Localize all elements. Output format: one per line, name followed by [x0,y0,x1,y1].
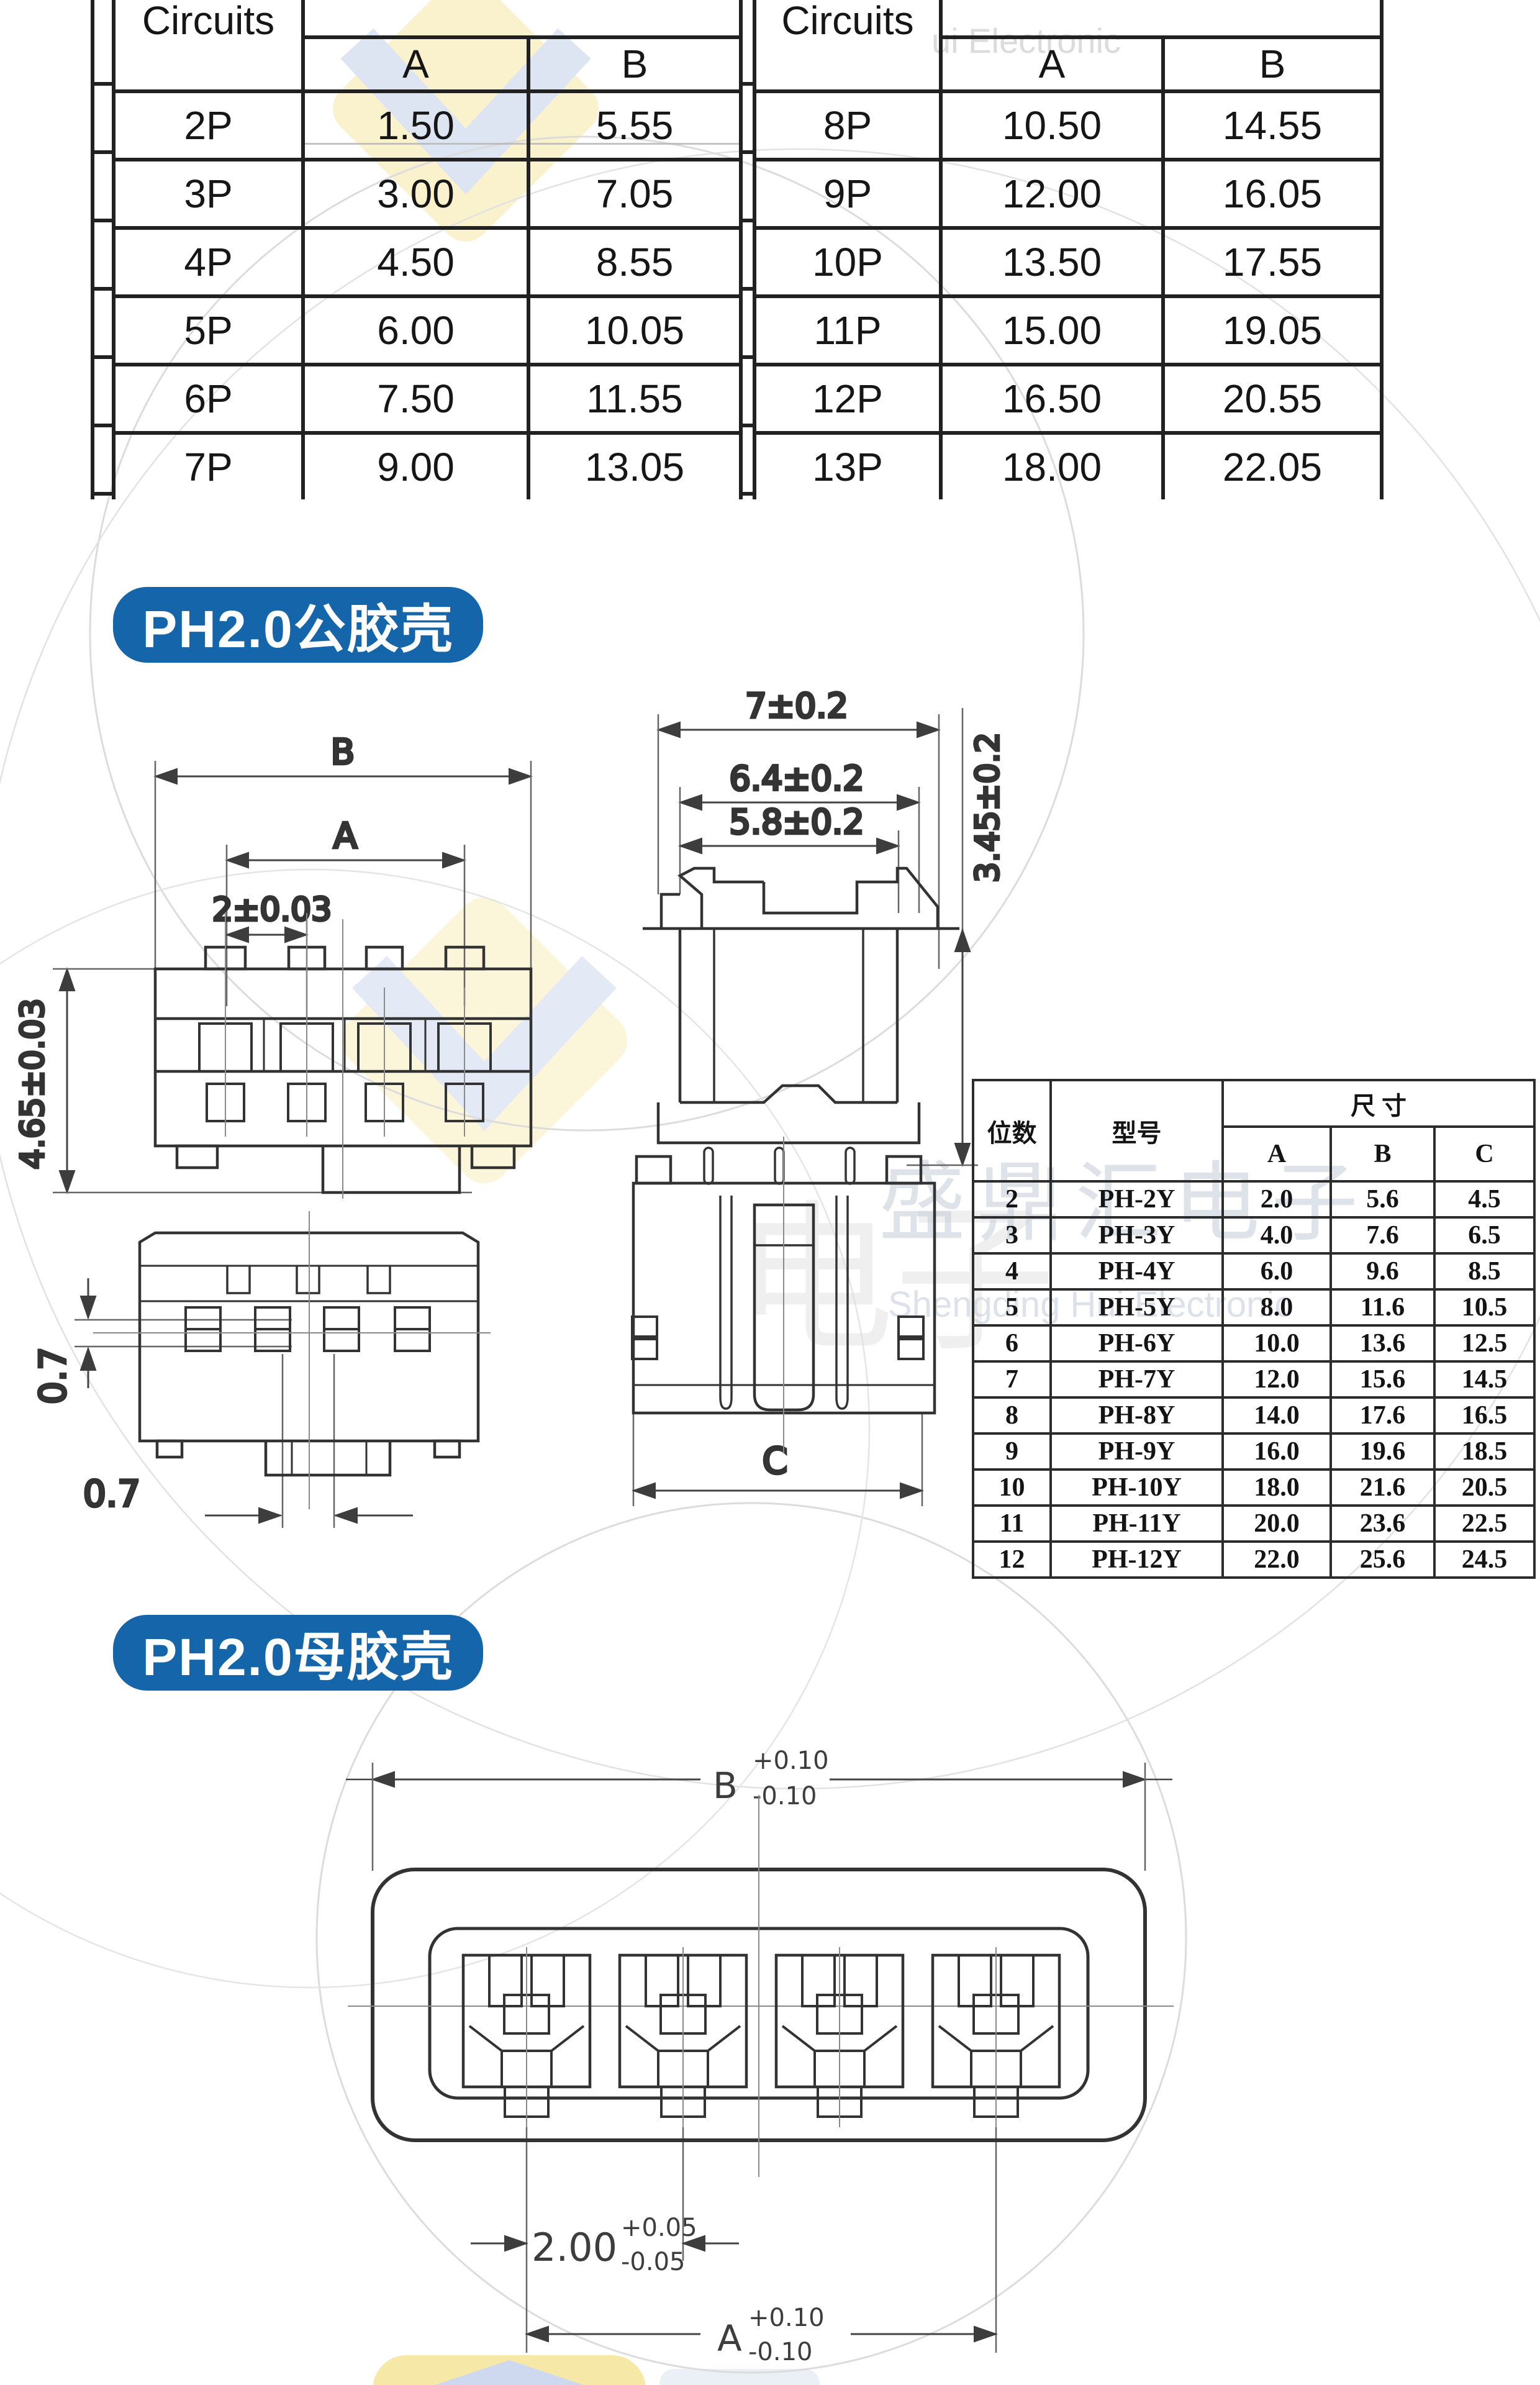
table-cell: 10P [754,228,941,296]
table-cell: 20.0 [1223,1506,1331,1542]
male-top-view: C [632,1137,935,1506]
table-row: 11P15.0019.05 [754,296,1382,365]
table-cell: 8 [973,1397,1051,1433]
table-cell: 11P [754,296,941,365]
table-cell: 6P [114,365,303,433]
col-header-cropped [303,0,741,37]
dim-label-pitch-tol-plus: +0.05 [621,2214,697,2242]
table-cell: 5 [973,1289,1051,1325]
table-cell: 12P [754,365,941,433]
table-cell: 9 [973,1433,1051,1470]
table-cell: 14.55 [1163,91,1382,160]
table-cell: 10.0 [1223,1325,1331,1361]
dim-label-b-tol-minus: -0.10 [753,1782,817,1810]
table-cell: 16.50 [941,365,1163,433]
table-cell: 21.6 [1331,1470,1434,1506]
table-row: 5PH-5Y8.011.610.5 [973,1289,1534,1325]
table-cell: 6 [973,1325,1051,1361]
table-cell: 13.6 [1331,1325,1434,1361]
table-cell: 12 [973,1542,1051,1578]
table-cell: PH-3Y [1051,1217,1223,1253]
spec-header-positions: 位数 [973,1080,1051,1181]
col-header-a: A [941,37,1163,91]
table-cell: 5P [114,296,303,365]
table-cell: 23.6 [1331,1506,1434,1542]
table-row: 5P6.0010.05 [114,296,741,365]
table-cell: 11 [973,1506,1051,1542]
female-housing-drawing: +0.10 B -0.10 2.00 +0.05 -0.05 A +0.10 -… [0,1727,1540,2385]
dim-label-b-tol-plus: +0.10 [753,1747,829,1775]
table-row: 11PH-11Y20.023.622.5 [973,1506,1534,1542]
spec-header-model: 型号 [1051,1080,1223,1181]
table-cell: PH-7Y [1051,1361,1223,1397]
dim-label-pitch: 2.00 [532,2225,617,2270]
table-cell: PH-5Y [1051,1289,1223,1325]
male-housing-badge-label: PH2.0公胶壳 [142,588,453,663]
table-cell: 13P [754,433,941,499]
table-cell: 9.00 [303,433,528,499]
table-cell: 14.0 [1223,1397,1331,1433]
table-cell: 8P [754,91,941,160]
product-spec-page: ui Electronic 电子 盛鼎汇电子 Shengding Hui Ele… [0,0,1540,2385]
table-cell: 10 [973,1470,1051,1506]
table-cell: 19.6 [1331,1433,1434,1470]
male-front-view: B A 2±0.03 4.65±0.03 [14,732,531,1199]
dim-label-b: B [331,732,355,773]
table-cell: 14.5 [1434,1361,1534,1397]
table-cell: 13.05 [528,433,741,499]
male-spec-table: 位数 型号 尺 寸 A B C 2PH-2Y2.05.64.53PH-3Y4.0… [972,1079,1536,1579]
table-cell: 24.5 [1434,1542,1534,1578]
table-row: 9P12.0016.05 [754,160,1382,228]
table-cell: 9.6 [1331,1253,1434,1289]
table-cell: 16.0 [1223,1433,1331,1470]
table-cell: 18.00 [941,433,1163,499]
table-cell: PH-11Y [1051,1506,1223,1542]
table-cell: 11.6 [1331,1289,1434,1325]
table-cell: 4.0 [1223,1217,1331,1253]
dim-label-w3: 5.8±0.2 [729,802,864,842]
table-cell: 6.00 [303,296,528,365]
table-cell: 11.55 [528,365,741,433]
table-cell: PH-4Y [1051,1253,1223,1289]
spec-header-size: 尺 寸 [1223,1080,1534,1127]
table-cell: 16.5 [1434,1397,1534,1433]
female-housing-body [348,1795,1174,2177]
dim-label-b: B [713,1765,738,1807]
pitch-table-left-wrap: Circuits A B 2P1.505.553P3.007.054P4.508… [112,0,743,499]
table-cell: PH-12Y [1051,1542,1223,1578]
dim-label-w1: 7±0.2 [745,686,848,725]
pitch-table-right-wrap: Circuits A B 8P10.5014.559P12.0016.0510P… [753,0,1384,499]
table-row: 4PH-4Y6.09.68.5 [973,1253,1534,1289]
dim-label-h2: 0.7 [83,1473,140,1515]
table-row: 10P13.5017.55 [754,228,1382,296]
table-cell: 17.55 [1163,228,1382,296]
table-cell: 8.5 [1434,1253,1534,1289]
dim-label-w2: 6.4±0.2 [729,759,864,798]
table-cell: 16.05 [1163,160,1382,228]
col-header-circuits: Circuits [114,0,303,91]
female-housing-badge-label: PH2.0母胶壳 [142,1615,453,1691]
table-cell: 8.0 [1223,1289,1331,1325]
table-cell: 20.55 [1163,365,1382,433]
table-row: 12P16.5020.55 [754,365,1382,433]
dim-label-h: 3.45±0.2 [969,732,1007,883]
table-cell: 7.50 [303,365,528,433]
table-cell: 10.05 [528,296,741,365]
male-side-view: 7±0.2 6.4±0.2 5.8±0.2 3.45±0.2 [643,686,1007,1165]
table-cell: 15.6 [1331,1361,1434,1397]
table-cell: 7.6 [1331,1217,1434,1253]
table-cell: 12.0 [1223,1361,1331,1397]
table-cell: 20.5 [1434,1470,1534,1506]
table-cell: 12.5 [1434,1325,1534,1361]
table-row: 2P1.505.55 [114,91,741,160]
table-row: 3PH-3Y4.07.66.5 [973,1217,1534,1253]
table-cell: 4.5 [1434,1181,1534,1217]
table-cell: 7 [973,1361,1051,1397]
spec-header-b: B [1331,1127,1434,1181]
table-row: 8PH-8Y14.017.616.5 [973,1397,1534,1433]
dim-label-pitch: 2±0.03 [212,891,332,929]
table-cell: 18.5 [1434,1433,1534,1470]
table-row: 7PH-7Y12.015.614.5 [973,1361,1534,1397]
table-cell: 15.00 [941,296,1163,365]
table-cell: 7.05 [528,160,741,228]
col-header-cropped [941,0,1382,37]
col-header-b: B [1163,37,1382,91]
spec-header-c: C [1434,1127,1534,1181]
table-cell: 4P [114,228,303,296]
dim-label-a-tol-minus: -0.10 [748,2338,813,2366]
male-housing-badge: PH2.0公胶壳 [113,587,483,663]
table-row: 10PH-10Y18.021.620.5 [973,1470,1534,1506]
table-row: 6PH-6Y10.013.612.5 [973,1325,1534,1361]
table-row: 4P4.508.55 [114,228,741,296]
col-header-circuits: Circuits [754,0,941,91]
table-cell: PH-8Y [1051,1397,1223,1433]
table-cell: 13.50 [941,228,1163,296]
dim-label-a-tol-plus: +0.10 [748,2304,825,2332]
table-cell: 2.0 [1223,1181,1331,1217]
table-cell: 8.55 [528,228,741,296]
table-cell: 22.5 [1434,1506,1534,1542]
pitch-table-left: Circuits A B 2P1.505.553P3.007.054P4.508… [112,0,743,499]
table-cell: PH-2Y [1051,1181,1223,1217]
table-cell: 5.6 [1331,1181,1434,1217]
table-cell: 2P [114,91,303,160]
table-cell: PH-6Y [1051,1325,1223,1361]
table-row: 7P9.0013.05 [114,433,741,499]
table-cell: 6.0 [1223,1253,1331,1289]
male-bottom-view: 0.7 0.7 [32,1211,491,1528]
table-cell: 3 [973,1217,1051,1253]
table-cell: 3P [114,160,303,228]
table-cell: 19.05 [1163,296,1382,365]
female-cavity [463,1947,590,2127]
table-cell: 7P [114,433,303,499]
table-cell: 25.6 [1331,1542,1434,1578]
table-cell: 12.00 [941,160,1163,228]
table-cell: 5.55 [528,91,741,160]
table-row: 3P3.007.05 [114,160,741,228]
pitch-table-right: Circuits A B 8P10.5014.559P12.0016.0510P… [753,0,1384,499]
dim-label-height: 4.65±0.03 [14,998,52,1169]
table-row: 2PH-2Y2.05.64.5 [973,1181,1534,1217]
female-housing-badge: PH2.0母胶壳 [113,1615,483,1691]
table-row: 13P18.0022.05 [754,433,1382,499]
table-cell: 17.6 [1331,1397,1434,1433]
table-cell: 1.50 [303,91,528,160]
table-row: 6P7.5011.55 [114,365,741,433]
table-cell: 18.0 [1223,1470,1331,1506]
table-cell: 6.5 [1434,1217,1534,1253]
dim-label-a: A [333,816,357,856]
table-cell: 10.50 [941,91,1163,160]
table-cell: 3.00 [303,160,528,228]
table-row: 8P10.5014.55 [754,91,1382,160]
table-cell: 22.05 [1163,433,1382,499]
table-cell: 4.50 [303,228,528,296]
dim-label-pitch-tol-minus: -0.05 [621,2248,686,2276]
table-cell: 9P [754,160,941,228]
spec-header-a: A [1223,1127,1331,1181]
table-cell: PH-10Y [1051,1470,1223,1506]
col-header-b: B [528,37,741,91]
table-cell: PH-9Y [1051,1433,1223,1470]
table-cell: 10.5 [1434,1289,1534,1325]
table-row: 9PH-9Y16.019.618.5 [973,1433,1534,1470]
table-cell: 22.0 [1223,1542,1331,1578]
col-header-a: A [303,37,528,91]
dim-label-a: A [717,2317,742,2360]
table-cell: 4 [973,1253,1051,1289]
dim-label-v: 0.7 [32,1347,74,1404]
table-cell: 2 [973,1181,1051,1217]
table-row: 12PH-12Y22.025.624.5 [973,1542,1534,1578]
